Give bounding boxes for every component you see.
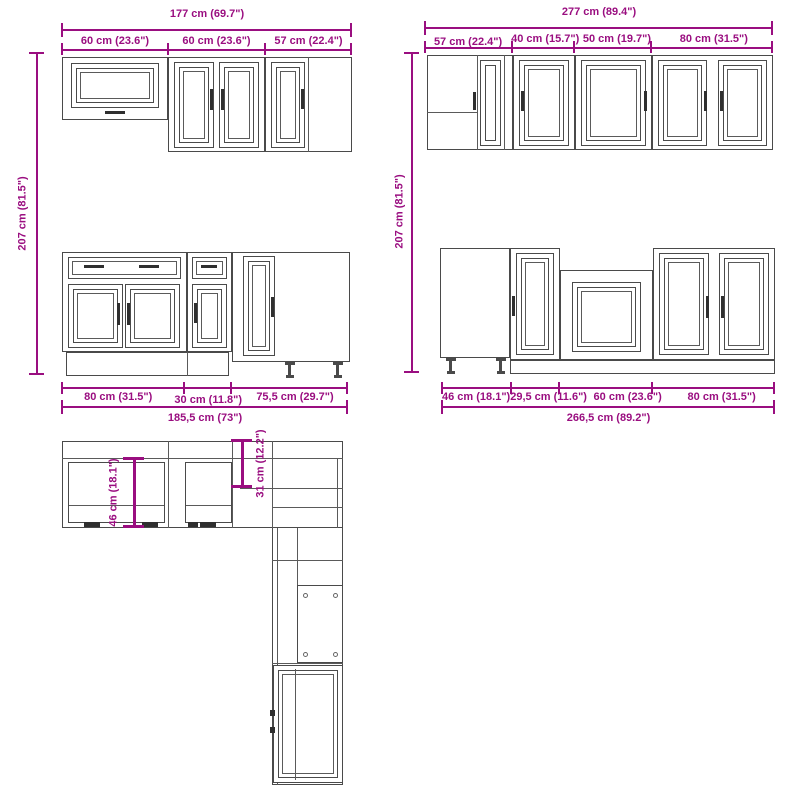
adjustable-leg [446,358,456,374]
door-handle [721,296,724,318]
dim-tick [771,41,773,53]
plan-cabinet-outline [185,462,232,523]
plan-wall-depth-label: 31 cm (12.2") [255,404,268,524]
plan-handle [142,522,158,527]
segment-width-label: 80 cm (31.5") [62,391,174,404]
adjustable-leg [285,362,295,378]
plan-tall-door [273,665,343,783]
dim-line [62,387,348,389]
segment-width-label: 75,5 cm (29.7") [242,391,348,404]
screw-hole [303,652,308,657]
cabinet-door [271,62,305,148]
hinge [270,710,275,716]
adjustable-leg [333,362,343,378]
wall-left-segment-labels: 60 cm (23.6") 60 cm (23.6") 57 cm (22.4"… [62,35,352,48]
door-handle [105,111,125,114]
screw-hole [333,593,338,598]
cabinet-door [480,60,501,146]
base-left-segment-labels: 80 cm (31.5") 30 cm (11.8") 75,5 cm (29.… [62,391,348,404]
plan-line [295,669,296,780]
plan-line [186,505,231,506]
dim-line [62,29,352,31]
dim-line-height [36,53,38,375]
cabinet-door [68,284,123,348]
drawer-front [192,257,227,279]
dim-line-depth [133,458,136,528]
door-handle [301,89,304,109]
dim-tick [350,43,352,55]
door-handle [706,296,709,318]
segment-width-label: 80 cm (31.5") [668,391,775,404]
door-handle [117,303,120,325]
dim-tick [650,41,652,53]
plan-handle [84,522,100,527]
dim-tick [404,371,419,373]
door-handle [644,91,647,111]
plan-handle [200,522,216,527]
panel-line [308,57,309,152]
panel-line [427,112,477,113]
cabinet-door [659,253,709,355]
segment-width-label: 46 cm (18.1") [442,391,510,404]
cabinet-door [719,253,769,355]
screw-hole [333,652,338,657]
appliance-panel [572,282,641,352]
plan-line [272,663,343,664]
door-handle [210,89,213,110]
dim-line [425,47,773,49]
cabinet-door [192,284,227,348]
dim-line-height [411,53,413,373]
cabinet-door [658,60,707,146]
dim-tick [231,485,252,488]
door-handle [194,303,197,323]
door-handle [512,296,515,316]
segment-width-label: 57 cm (22.4") [265,35,352,48]
dim-tick [29,52,44,54]
plan-line [272,441,273,528]
hinge [270,727,275,733]
glass-door [581,60,646,146]
cabinet-door [219,62,259,148]
door-handle [720,91,723,111]
panel-line [477,55,478,150]
door-handle [127,303,130,325]
plan-handle [188,522,198,527]
wall-right-total-width-label: 277 cm (89.4") [425,6,773,19]
height-label-right: 207 cm (81.5") [394,152,407,272]
door-handle [271,297,274,317]
base-left-total-width-label: 185,5 cm (73") [62,412,348,425]
dim-tick [29,373,44,375]
drawer-handle [201,265,217,268]
segment-width-label: 40 cm (15.7") [511,33,579,46]
dim-line [62,49,352,51]
screw-hole [303,593,308,598]
wall-right-segment-labels: 57 cm (22.4") 40 cm (15.7") 50 cm (19.7"… [425,33,773,46]
drawer-front [68,257,181,279]
segment-width-label: 29,5 cm (11.6") [510,391,587,404]
base-corner-cabinet [440,248,510,358]
plan-line [62,458,343,459]
kitchen-dimension-diagram: 177 cm (69.7") 60 cm (23.6") 60 cm (23.6… [0,0,800,800]
dim-tick [231,439,252,442]
plinth [66,352,229,376]
dim-line [442,406,775,408]
dim-tick [404,52,419,54]
plinth [510,360,775,374]
base-right-total-width-label: 266,5 cm (89.2") [442,412,775,425]
door-handle [521,91,524,111]
cabinet-door [516,253,554,355]
segment-width-label: 50 cm (19.7") [579,33,654,46]
dim-tick [511,41,513,53]
door-handle [473,92,476,110]
cabinet-door [174,62,214,148]
dim-tick [123,525,144,528]
wall-left-total-width-label: 177 cm (69.7") [62,8,352,21]
dim-line [442,387,775,389]
dim-tick [61,43,63,55]
cabinet-door [125,284,180,348]
segment-width-label: 60 cm (23.6") [168,35,265,48]
plan-line [168,441,169,528]
segment-width-label: 60 cm (23.6") [587,391,668,404]
panel-line [187,352,188,376]
dim-tick [573,41,575,53]
base-right-segment-labels: 46 cm (18.1") 29,5 cm (11.6") 60 cm (23.… [442,391,775,404]
dim-tick [167,43,169,55]
dim-tick [123,457,144,460]
plan-line [272,560,343,561]
dim-line [62,406,348,408]
segment-width-label: 80 cm (31.5") [655,33,773,46]
drawer-handle [84,265,104,268]
dim-line-depth [241,440,244,488]
bridge-glass-door [71,63,159,108]
cabinet-door [519,60,569,146]
plan-line [337,458,338,528]
plan-line [272,507,343,508]
segment-width-label: 60 cm (23.6") [62,35,168,48]
door-handle [221,89,224,110]
dim-tick [424,41,426,53]
plan-base-depth-label: 46 cm (18.1") [108,433,121,553]
height-label-left: 207 cm (81.5") [17,154,30,274]
drawer-handle [139,265,159,268]
adjustable-leg [496,358,506,374]
door-handle [704,91,707,111]
dim-tick [264,43,266,55]
cabinet-door [718,60,767,146]
dim-line [425,27,773,29]
panel-line [504,55,505,150]
